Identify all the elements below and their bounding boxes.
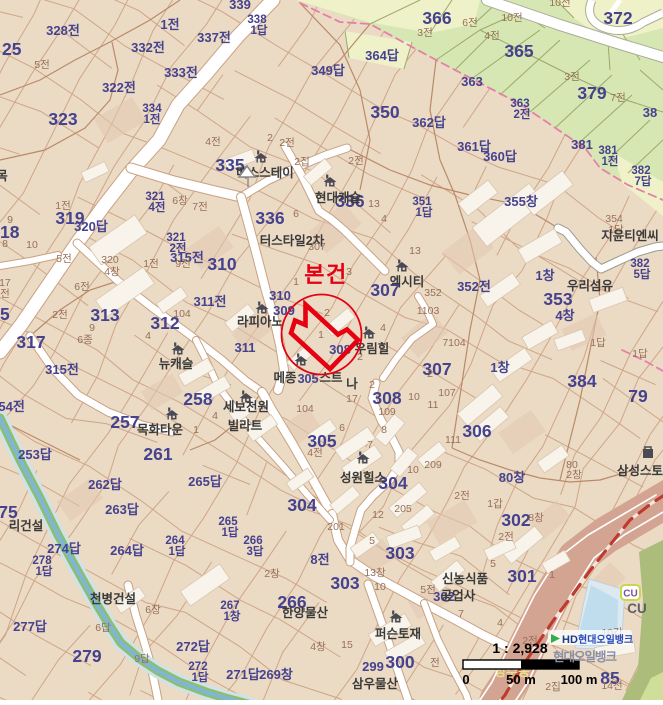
- svg-text:349답: 349답: [311, 63, 345, 78]
- svg-text:5전: 5전: [34, 59, 50, 71]
- svg-text:우리섬유: 우리섬유: [567, 278, 614, 293]
- svg-text:리건설: 리건설: [9, 518, 44, 533]
- svg-text:201: 201: [327, 521, 345, 533]
- svg-text:320답: 320답: [74, 219, 108, 234]
- svg-text:317: 317: [16, 332, 45, 352]
- svg-text:지윤티엔씨: 지윤티엔씨: [601, 228, 659, 243]
- svg-text:삼우물산: 삼우물산: [352, 676, 399, 691]
- svg-text:384: 384: [567, 371, 596, 391]
- svg-text:천병건설: 천병건설: [90, 591, 136, 606]
- svg-text:3전: 3전: [564, 71, 580, 83]
- svg-text:352: 352: [424, 287, 442, 299]
- svg-text:1전: 1전: [144, 112, 161, 126]
- svg-text:265답: 265답: [188, 474, 222, 489]
- svg-text:뉴캐슬: 뉴캐슬: [159, 357, 194, 371]
- svg-text:목화타운: 목화타운: [137, 422, 184, 437]
- svg-text:5: 5: [369, 535, 375, 547]
- svg-text:6창: 6창: [145, 604, 161, 616]
- svg-text:15: 15: [341, 639, 353, 651]
- svg-text:퍼슨토재: 퍼슨토재: [375, 626, 421, 641]
- svg-text:362답: 362답: [412, 115, 446, 130]
- svg-text:7답: 7답: [635, 174, 652, 188]
- svg-text:7: 7: [367, 439, 373, 451]
- svg-text:7104: 7104: [442, 337, 466, 349]
- svg-text:13: 13: [368, 198, 380, 210]
- svg-text:0: 0: [462, 672, 469, 687]
- svg-text:2전: 2전: [514, 107, 531, 121]
- svg-text:1답: 1답: [192, 670, 209, 684]
- svg-text:1전: 1전: [55, 200, 71, 212]
- svg-text:4: 4: [212, 410, 218, 422]
- svg-text:17: 17: [346, 393, 358, 405]
- svg-text:8: 8: [2, 238, 8, 250]
- svg-text:1: 1: [549, 569, 555, 581]
- svg-text:111: 111: [445, 434, 461, 446]
- svg-text:1: 1: [293, 276, 299, 288]
- svg-text:323: 323: [48, 109, 77, 129]
- svg-text:308: 308: [372, 388, 401, 408]
- svg-text:311: 311: [235, 340, 256, 355]
- svg-text:1창: 1창: [490, 360, 509, 375]
- svg-text:2전: 2전: [348, 155, 364, 167]
- svg-text:261: 261: [143, 444, 172, 464]
- svg-text:2창: 2창: [566, 469, 582, 481]
- svg-text:263답: 263답: [105, 502, 139, 517]
- svg-text:HD: HD: [562, 634, 578, 646]
- svg-text:274답: 274답: [47, 541, 81, 556]
- svg-text:1전: 1전: [602, 154, 619, 168]
- svg-text:1창: 1창: [535, 268, 554, 283]
- svg-text:2집: 2집: [545, 681, 561, 693]
- svg-text:79: 79: [628, 386, 648, 406]
- svg-text:2: 2: [324, 307, 330, 319]
- svg-text:메종: 메종: [273, 370, 297, 385]
- svg-text:333전: 333전: [164, 65, 198, 80]
- svg-text:279: 279: [72, 646, 101, 666]
- svg-text:4: 4: [381, 213, 387, 225]
- svg-text:3전: 3전: [417, 27, 433, 39]
- svg-text:104: 104: [173, 308, 191, 320]
- svg-text:4전: 4전: [484, 30, 500, 42]
- svg-text:381: 381: [571, 137, 593, 152]
- svg-text:목: 목: [0, 169, 8, 183]
- svg-text:364답: 364답: [365, 48, 399, 63]
- svg-text:2전: 2전: [498, 531, 514, 543]
- svg-text:328전: 328전: [46, 23, 80, 38]
- svg-text:1답: 1답: [416, 205, 433, 219]
- svg-text:2전: 2전: [454, 490, 470, 502]
- svg-text:303: 303: [330, 573, 359, 593]
- svg-text:1: 1: [193, 424, 199, 436]
- svg-text:터스타일2차: 터스타일2차: [260, 233, 325, 248]
- svg-text:5전: 5전: [420, 584, 436, 596]
- svg-text:360답: 360답: [483, 149, 517, 164]
- svg-text:5: 5: [0, 304, 10, 324]
- svg-text:10: 10: [408, 391, 420, 403]
- svg-text:14전: 14전: [601, 680, 622, 692]
- svg-text:삼성스토: 삼성스토: [617, 463, 663, 478]
- svg-text:6전: 6전: [74, 281, 90, 293]
- svg-text:355창: 355창: [504, 194, 538, 209]
- svg-text:107: 107: [438, 387, 456, 399]
- svg-text:4: 4: [497, 617, 503, 629]
- svg-text:6답: 6답: [95, 622, 111, 634]
- svg-text:5답: 5답: [634, 267, 651, 281]
- svg-text:50 m: 50 m: [506, 672, 536, 687]
- svg-text:7전: 7전: [610, 92, 626, 104]
- svg-text:337전: 337전: [197, 30, 231, 45]
- svg-text:9답: 9답: [134, 653, 150, 665]
- svg-text:25: 25: [2, 39, 22, 59]
- svg-text:304: 304: [287, 495, 316, 515]
- svg-text:1답: 1답: [632, 348, 648, 360]
- svg-text:5: 5: [490, 558, 496, 570]
- svg-text:4전: 4전: [149, 200, 166, 214]
- svg-text:10전: 10전: [501, 12, 522, 24]
- svg-text:빌라트: 빌라트: [228, 418, 263, 433]
- svg-text:1전: 1전: [160, 17, 179, 32]
- svg-text:352전: 352전: [457, 279, 491, 294]
- svg-text:271답: 271답: [226, 667, 260, 682]
- svg-text:1답: 1답: [590, 337, 606, 349]
- svg-text:현대오일뱅크: 현대오일뱅크: [553, 649, 618, 664]
- svg-text:104: 104: [296, 403, 314, 415]
- svg-text:254전: 254전: [0, 399, 25, 414]
- svg-text:7: 7: [458, 608, 464, 620]
- svg-text:310: 310: [207, 254, 236, 274]
- svg-text:1답: 1답: [222, 525, 239, 539]
- svg-text:300: 300: [385, 652, 414, 672]
- svg-text:264답: 264답: [110, 543, 144, 558]
- svg-text:299: 299: [362, 659, 384, 674]
- svg-text:5전: 5전: [56, 253, 72, 265]
- svg-text:322전: 322전: [102, 80, 136, 95]
- svg-text:13: 13: [409, 245, 421, 257]
- svg-text:363: 363: [461, 74, 483, 89]
- svg-text:10: 10: [26, 239, 38, 251]
- svg-text:현대캐슬: 현대캐슬: [315, 190, 362, 205]
- svg-text:336: 336: [255, 208, 284, 228]
- svg-text:257: 257: [110, 412, 139, 432]
- svg-text:339: 339: [229, 0, 251, 12]
- svg-text:전: 전: [430, 657, 440, 669]
- svg-text:350: 350: [370, 102, 399, 122]
- svg-text:258: 258: [183, 389, 212, 409]
- svg-text:303: 303: [385, 543, 414, 563]
- svg-text:209: 209: [424, 459, 442, 471]
- svg-text:6창: 6창: [172, 195, 188, 207]
- svg-text:6종: 6종: [77, 334, 93, 346]
- svg-text:320: 320: [101, 254, 119, 266]
- svg-text:2: 2: [427, 368, 433, 380]
- svg-text:372: 372: [603, 8, 632, 28]
- svg-text:성원힐스: 성원힐스: [340, 470, 387, 485]
- svg-text:2창: 2창: [264, 568, 280, 580]
- svg-text:신농식품: 신농식품: [442, 571, 489, 586]
- svg-text:262답: 262답: [88, 477, 122, 492]
- svg-text:3답: 3답: [247, 544, 264, 558]
- svg-text:4: 4: [145, 330, 151, 342]
- svg-text:12: 12: [372, 509, 384, 521]
- svg-text:253답: 253답: [18, 447, 52, 462]
- svg-text:302: 302: [501, 510, 530, 530]
- svg-text:4전: 4전: [205, 136, 221, 148]
- svg-text:1갑: 1갑: [487, 498, 503, 510]
- svg-text:1 : 2,928: 1 : 2,928: [492, 640, 547, 656]
- svg-text:CU: CU: [627, 601, 647, 616]
- svg-text:9: 9: [7, 214, 13, 226]
- svg-text:2전: 2전: [170, 241, 187, 255]
- svg-text:본건: 본건: [304, 262, 347, 287]
- svg-text:1답: 1답: [36, 564, 53, 578]
- svg-text:4창: 4창: [104, 266, 120, 278]
- svg-text:한양물산: 한양물산: [282, 605, 329, 620]
- svg-text:2집: 2집: [294, 156, 310, 168]
- svg-text:2전: 2전: [52, 309, 68, 321]
- svg-text:100 m: 100 m: [561, 672, 598, 687]
- svg-text:8창: 8창: [528, 512, 544, 524]
- svg-text:9전: 9전: [175, 258, 191, 270]
- svg-text:1답: 1답: [169, 544, 186, 558]
- svg-text:277답: 277답: [13, 619, 47, 634]
- svg-text:현대오일뱅크: 현대오일뱅크: [578, 633, 633, 646]
- svg-text:315전: 315전: [45, 362, 79, 377]
- svg-text:8전: 8전: [310, 552, 329, 567]
- svg-text:269창: 269창: [259, 667, 293, 682]
- svg-text:1답: 1답: [251, 23, 268, 37]
- svg-text:13창: 13창: [364, 567, 386, 579]
- svg-text:1전: 1전: [143, 258, 159, 270]
- svg-text:2전: 2전: [0, 288, 10, 300]
- svg-text:109: 109: [378, 406, 396, 418]
- svg-text:9: 9: [89, 322, 95, 334]
- svg-text:1창: 1창: [224, 609, 241, 623]
- svg-text:365: 365: [504, 41, 533, 61]
- svg-text:라피아노: 라피아노: [237, 314, 284, 329]
- svg-text:1: 1: [318, 329, 324, 341]
- svg-text:6전: 6전: [462, 17, 478, 29]
- svg-text:11: 11: [428, 399, 439, 411]
- svg-text:379: 379: [577, 83, 606, 103]
- svg-text:10전: 10전: [549, 0, 570, 9]
- svg-text:38: 38: [643, 105, 657, 120]
- svg-text:4전: 4전: [307, 447, 323, 459]
- svg-text:4창: 4창: [555, 308, 574, 323]
- svg-text:310: 310: [269, 288, 291, 303]
- svg-text:272답: 272답: [176, 639, 210, 654]
- svg-text:8: 8: [381, 424, 387, 436]
- svg-text:2: 2: [369, 379, 375, 391]
- svg-text:4: 4: [380, 322, 386, 334]
- svg-text:CU: CU: [623, 589, 637, 600]
- svg-text:205: 205: [394, 503, 412, 515]
- svg-text:80창: 80창: [499, 470, 525, 485]
- svg-text:6: 6: [293, 208, 299, 220]
- svg-text:1103: 1103: [417, 305, 440, 317]
- svg-text:4창: 4창: [310, 641, 326, 653]
- svg-text:6: 6: [339, 422, 345, 434]
- svg-text:7전: 7전: [192, 201, 208, 213]
- svg-text:311전: 311전: [194, 294, 227, 309]
- svg-text:공업사: 공업사: [441, 588, 476, 603]
- svg-text:2: 2: [267, 132, 273, 144]
- svg-text:332전: 332전: [131, 40, 165, 55]
- svg-text:10: 10: [407, 464, 419, 476]
- svg-text:366: 366: [422, 8, 451, 28]
- svg-text:306: 306: [462, 421, 491, 441]
- svg-text:2전: 2전: [279, 137, 295, 149]
- svg-text:10: 10: [374, 581, 386, 593]
- svg-text:나: 나: [346, 376, 358, 391]
- svg-text:301: 301: [507, 566, 536, 586]
- svg-text:엑시티: 엑시티: [390, 274, 425, 289]
